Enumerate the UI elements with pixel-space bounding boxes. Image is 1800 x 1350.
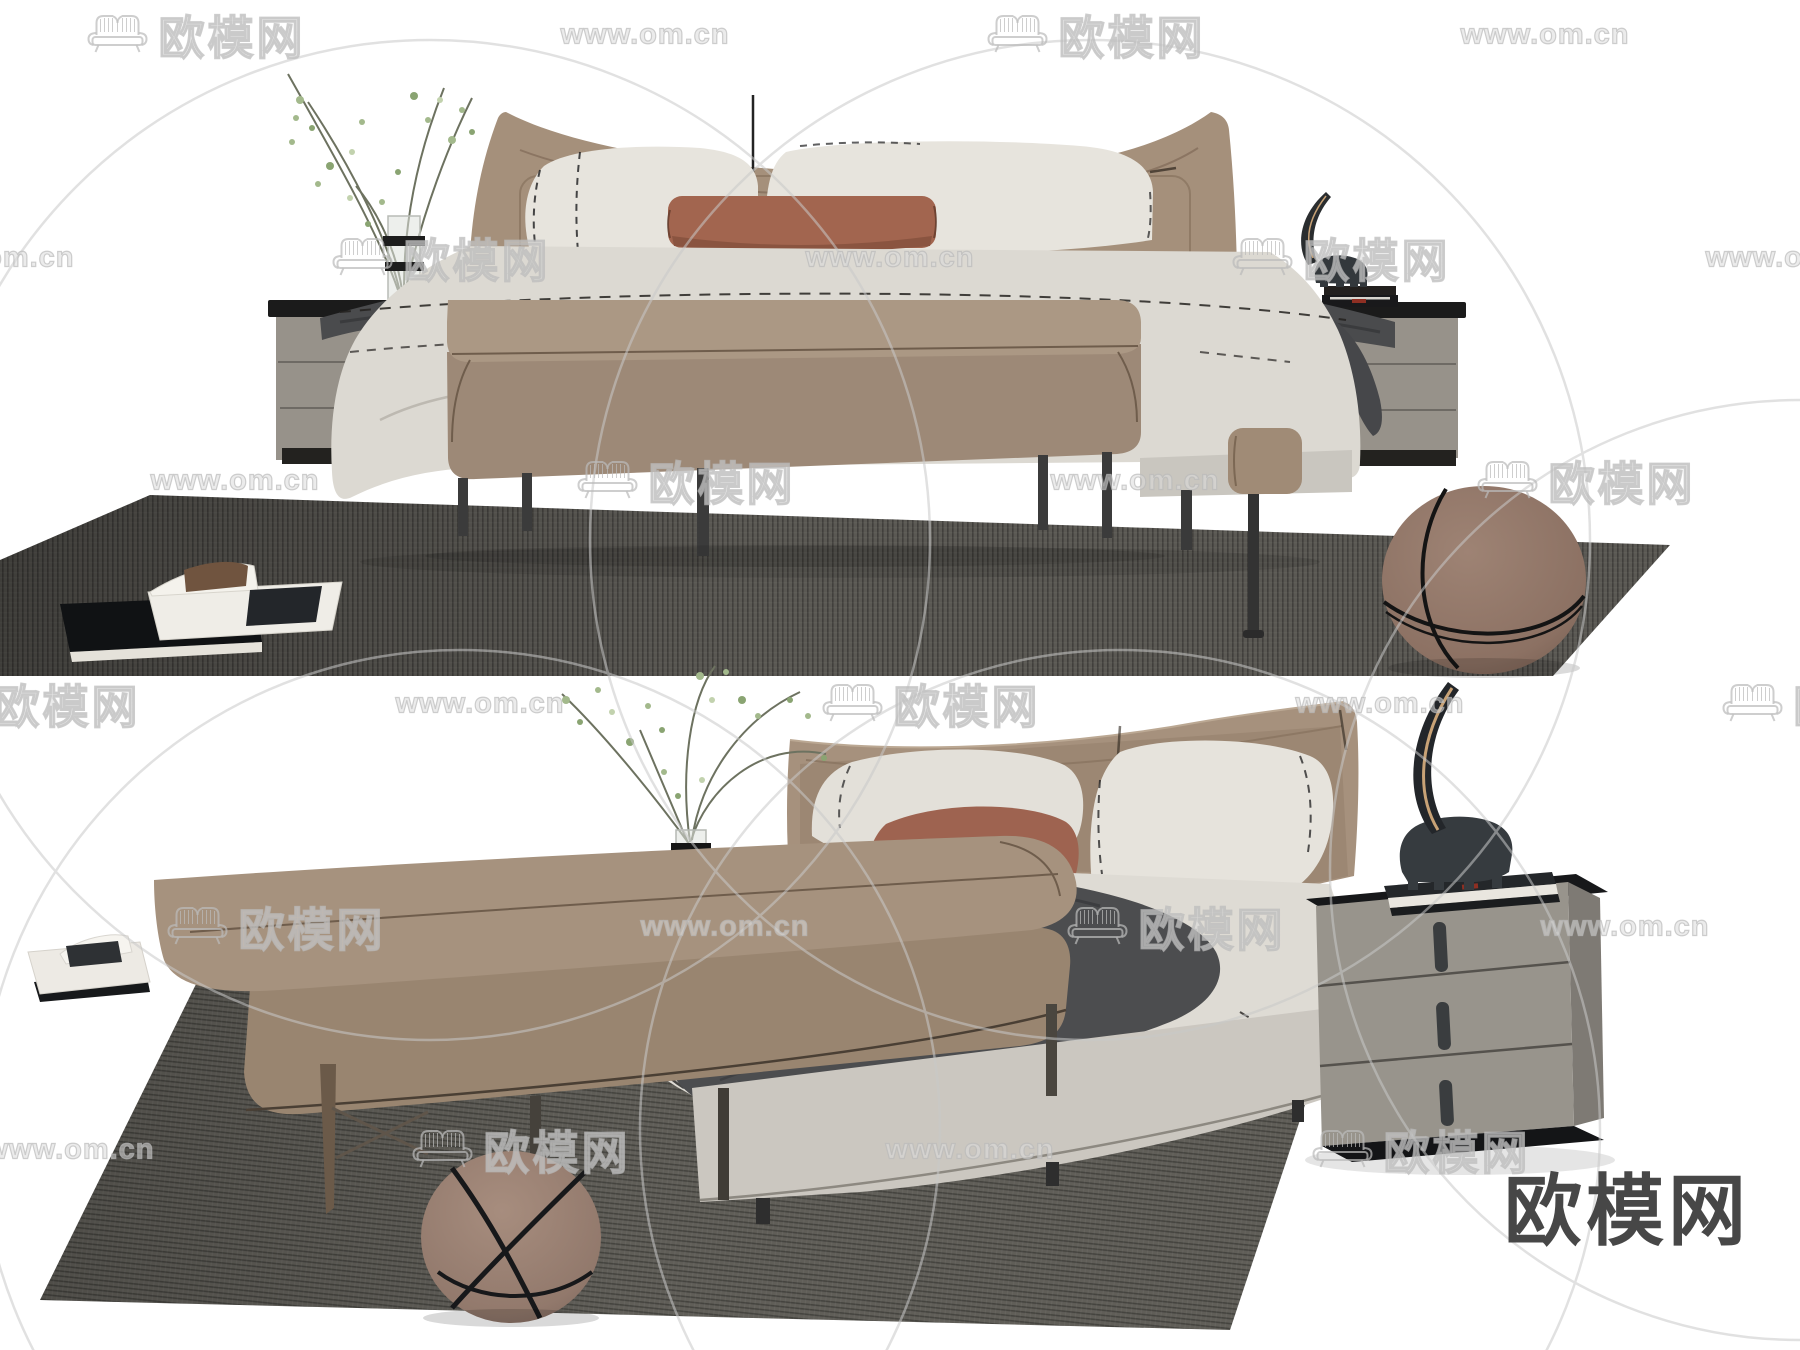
brand-watermark-large: 欧模网 (1504, 1149, 1750, 1261)
bed-foot-b (1046, 1162, 1059, 1186)
front-view (0, 74, 1670, 678)
horn-small (1301, 192, 1331, 265)
bed-leg-front-a (1181, 490, 1192, 550)
furniture-render-canvas: 欧模网www.om.cn欧模网www.om.cnwww.om.cn欧模网www.… (0, 0, 1800, 1350)
bed-leg-front-b (1248, 492, 1259, 636)
bedroom-render (0, 0, 1800, 1350)
pillow-terracotta (668, 196, 936, 252)
bed-foot-c (1292, 1100, 1304, 1122)
bed-foot-corner-tan (1228, 428, 1302, 494)
plant-leaves (289, 92, 475, 227)
horn-perspective (1413, 682, 1459, 834)
perspective-view (28, 666, 1615, 1330)
bed-foot-a (756, 1198, 770, 1224)
open-book-perspective (28, 935, 150, 1002)
rhino-sculpture-small (1301, 192, 1367, 287)
rhino-sculpture-perspective (1400, 682, 1513, 890)
book-stack-small (1322, 286, 1398, 307)
